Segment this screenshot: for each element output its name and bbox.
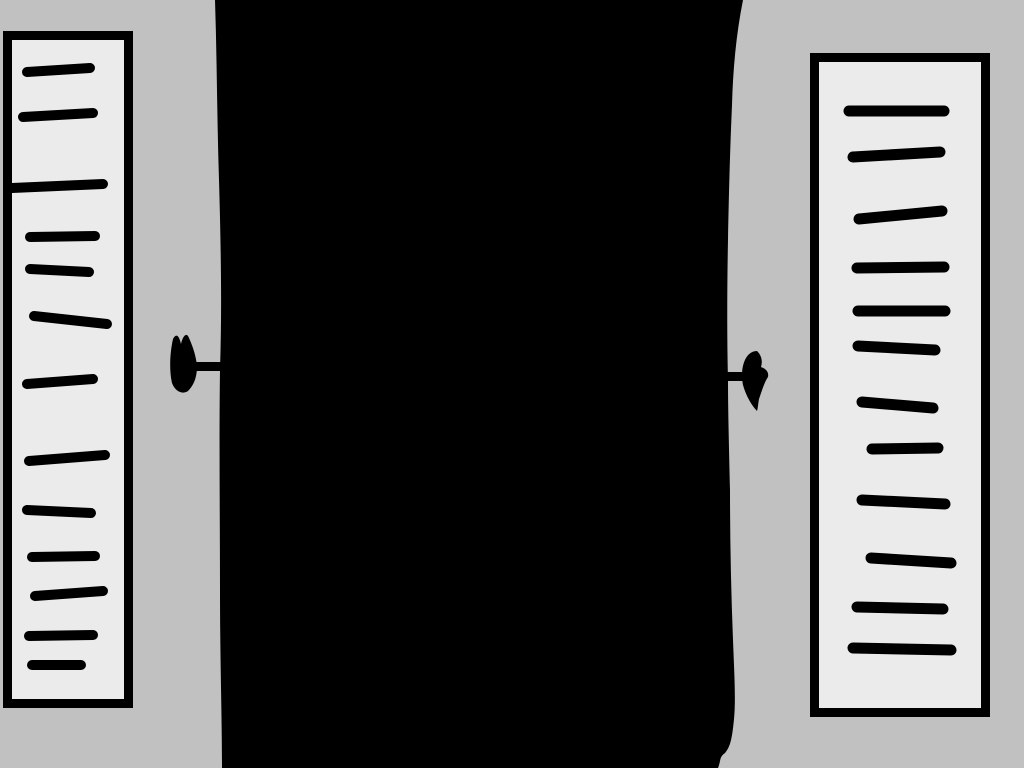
text-line — [23, 113, 93, 117]
diagram-svg — [0, 0, 1024, 768]
text-line — [32, 556, 95, 557]
text-line — [862, 500, 945, 504]
text-line — [29, 635, 93, 636]
right-panel — [810, 53, 990, 717]
center-blob-shape — [215, 0, 743, 768]
text-line — [35, 591, 103, 596]
text-line — [862, 402, 933, 408]
text-line — [858, 346, 935, 350]
text-line — [871, 558, 951, 563]
center-blob — [215, 0, 743, 768]
panel-body — [12, 40, 124, 699]
text-line — [27, 379, 93, 384]
text-line — [30, 236, 95, 237]
text-line — [27, 68, 90, 72]
text-line — [27, 510, 91, 513]
left-panel — [3, 31, 133, 708]
text-line — [872, 448, 938, 449]
text-line — [12, 184, 103, 188]
canvas — [0, 0, 1024, 768]
text-line — [30, 269, 89, 272]
text-line — [857, 267, 944, 268]
text-line — [29, 455, 105, 461]
text-line — [857, 607, 943, 609]
text-line — [853, 648, 951, 650]
text-line — [853, 152, 940, 157]
arrow-stem — [193, 362, 224, 371]
